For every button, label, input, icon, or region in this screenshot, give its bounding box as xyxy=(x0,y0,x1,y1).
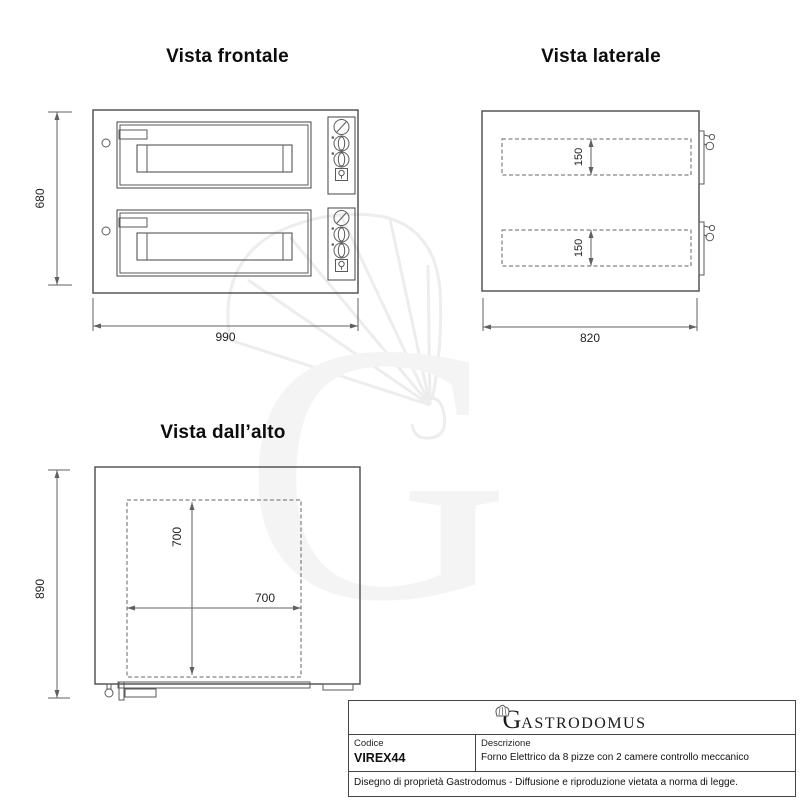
front-deck-1 xyxy=(102,122,311,188)
description-cell: Descrizione Forno Elettrico da 8 pizze c… xyxy=(476,735,795,771)
panel2-knob-1-icon xyxy=(332,227,350,242)
side-depth-dim-label: 820 xyxy=(580,331,600,345)
top-view-title: Vista dall’alto xyxy=(45,422,401,444)
panel2-knob-2-icon xyxy=(332,243,350,258)
legal-notice: Disegno di proprietà Gastrodomus - Diffu… xyxy=(349,772,795,788)
front-width-dim-label: 990 xyxy=(215,330,235,344)
front-view-title: Vista frontale xyxy=(50,46,405,68)
deck1-pilot-light xyxy=(102,139,110,147)
deck2-handle xyxy=(137,233,292,260)
top-inner-width-dim-label: 700 xyxy=(255,591,275,605)
title-block-logo-row: GASTRODOMUS xyxy=(349,701,795,735)
panel2-thermometer-dial-icon xyxy=(334,211,349,226)
side-door1-handle-icon xyxy=(704,134,715,149)
top-depth-dimension: 890 xyxy=(33,470,70,698)
side-view-drawing: 150 150 820 xyxy=(460,100,750,352)
side-chamber1-dim-label: 150 xyxy=(573,148,585,166)
code-value: VIREX44 xyxy=(354,751,470,765)
brand-rest: ASTRODOMUS xyxy=(521,715,646,732)
side-chamber1-dimension: 150 xyxy=(573,139,594,175)
top-depth-dim-label: 890 xyxy=(33,579,47,599)
deck1-vent xyxy=(119,130,147,139)
top-inner-width-dimension: 700 xyxy=(127,591,301,611)
side-chamber2-dimension: 150 xyxy=(573,230,594,266)
side-chamber2-dim-label: 150 xyxy=(573,239,585,257)
control-panel-1 xyxy=(328,117,355,194)
deck1-door-frame xyxy=(117,122,311,188)
description-label: Descrizione xyxy=(481,738,790,749)
side-door2-handle-icon xyxy=(704,225,715,240)
panel1-indicator-light-icon xyxy=(336,169,348,181)
panel1-knob-1-icon xyxy=(332,136,350,151)
deck1-handle xyxy=(137,145,292,172)
top-door-handle-icon xyxy=(105,682,156,700)
panel1-thermometer-dial-icon xyxy=(334,120,349,135)
deck1-door-inner xyxy=(120,125,308,185)
side-chamber-1-hidden xyxy=(502,139,691,175)
title-block-info-row: Codice VIREX44 Descrizione Forno Elettri… xyxy=(349,735,795,772)
front-height-dim-label: 680 xyxy=(33,188,47,208)
side-door-2 xyxy=(699,222,715,275)
top-view-drawing: 700 700 890 xyxy=(30,455,390,710)
front-height-dimension: 680 xyxy=(33,112,72,285)
side-depth-dimension: 820 xyxy=(483,298,697,345)
front-view-drawing: 680 990 xyxy=(30,100,380,352)
side-view-title: Vista laterale xyxy=(460,46,742,68)
control-panel-2 xyxy=(328,208,355,280)
deck2-door-frame xyxy=(117,210,311,276)
panel2-indicator-light-icon xyxy=(336,260,348,272)
chef-hat-logo-icon xyxy=(493,703,512,719)
top-door-edge xyxy=(118,682,310,688)
deck2-vent xyxy=(119,218,147,227)
top-right-foot xyxy=(323,684,353,690)
front-deck-2 xyxy=(102,210,311,276)
panel1-knob-2-icon xyxy=(332,152,350,167)
title-block: GASTRODOMUS Codice VIREX44 Descrizione F… xyxy=(348,700,796,797)
top-inner-depth-dimension: 700 xyxy=(170,502,195,675)
top-inner-depth-dim-label: 700 xyxy=(170,527,184,547)
code-cell: Codice VIREX44 xyxy=(349,735,476,771)
description-value: Forno Elettrico da 8 pizze con 2 camere … xyxy=(481,752,790,763)
front-width-dimension: 990 xyxy=(93,298,358,344)
top-chamber-hidden xyxy=(127,500,301,677)
code-label: Codice xyxy=(354,738,470,749)
front-oven-body-outline xyxy=(93,110,358,293)
deck2-door-inner xyxy=(120,213,308,273)
side-door-1 xyxy=(699,131,715,184)
brand-logo: GASTRODOMUS xyxy=(349,707,795,733)
side-chamber-2-hidden xyxy=(502,230,691,266)
deck2-pilot-light xyxy=(102,227,110,235)
